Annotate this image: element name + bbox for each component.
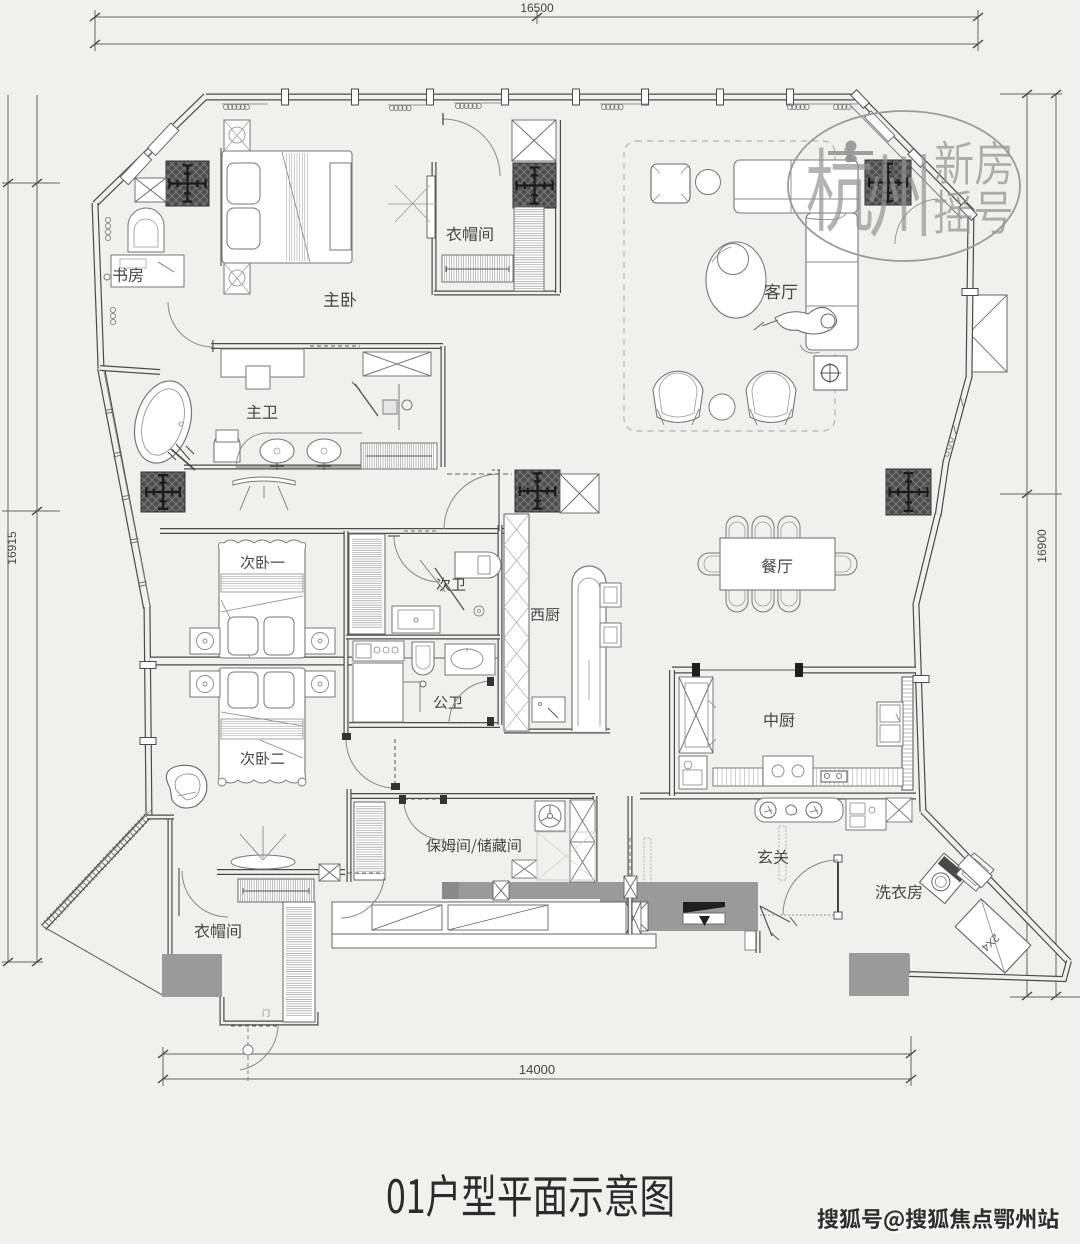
svg-text:14000: 14000 — [519, 1062, 555, 1077]
svg-text:16900: 16900 — [1035, 529, 1049, 563]
svg-text:16500: 16500 — [520, 1, 554, 15]
svg-text:16915: 16915 — [5, 531, 19, 565]
